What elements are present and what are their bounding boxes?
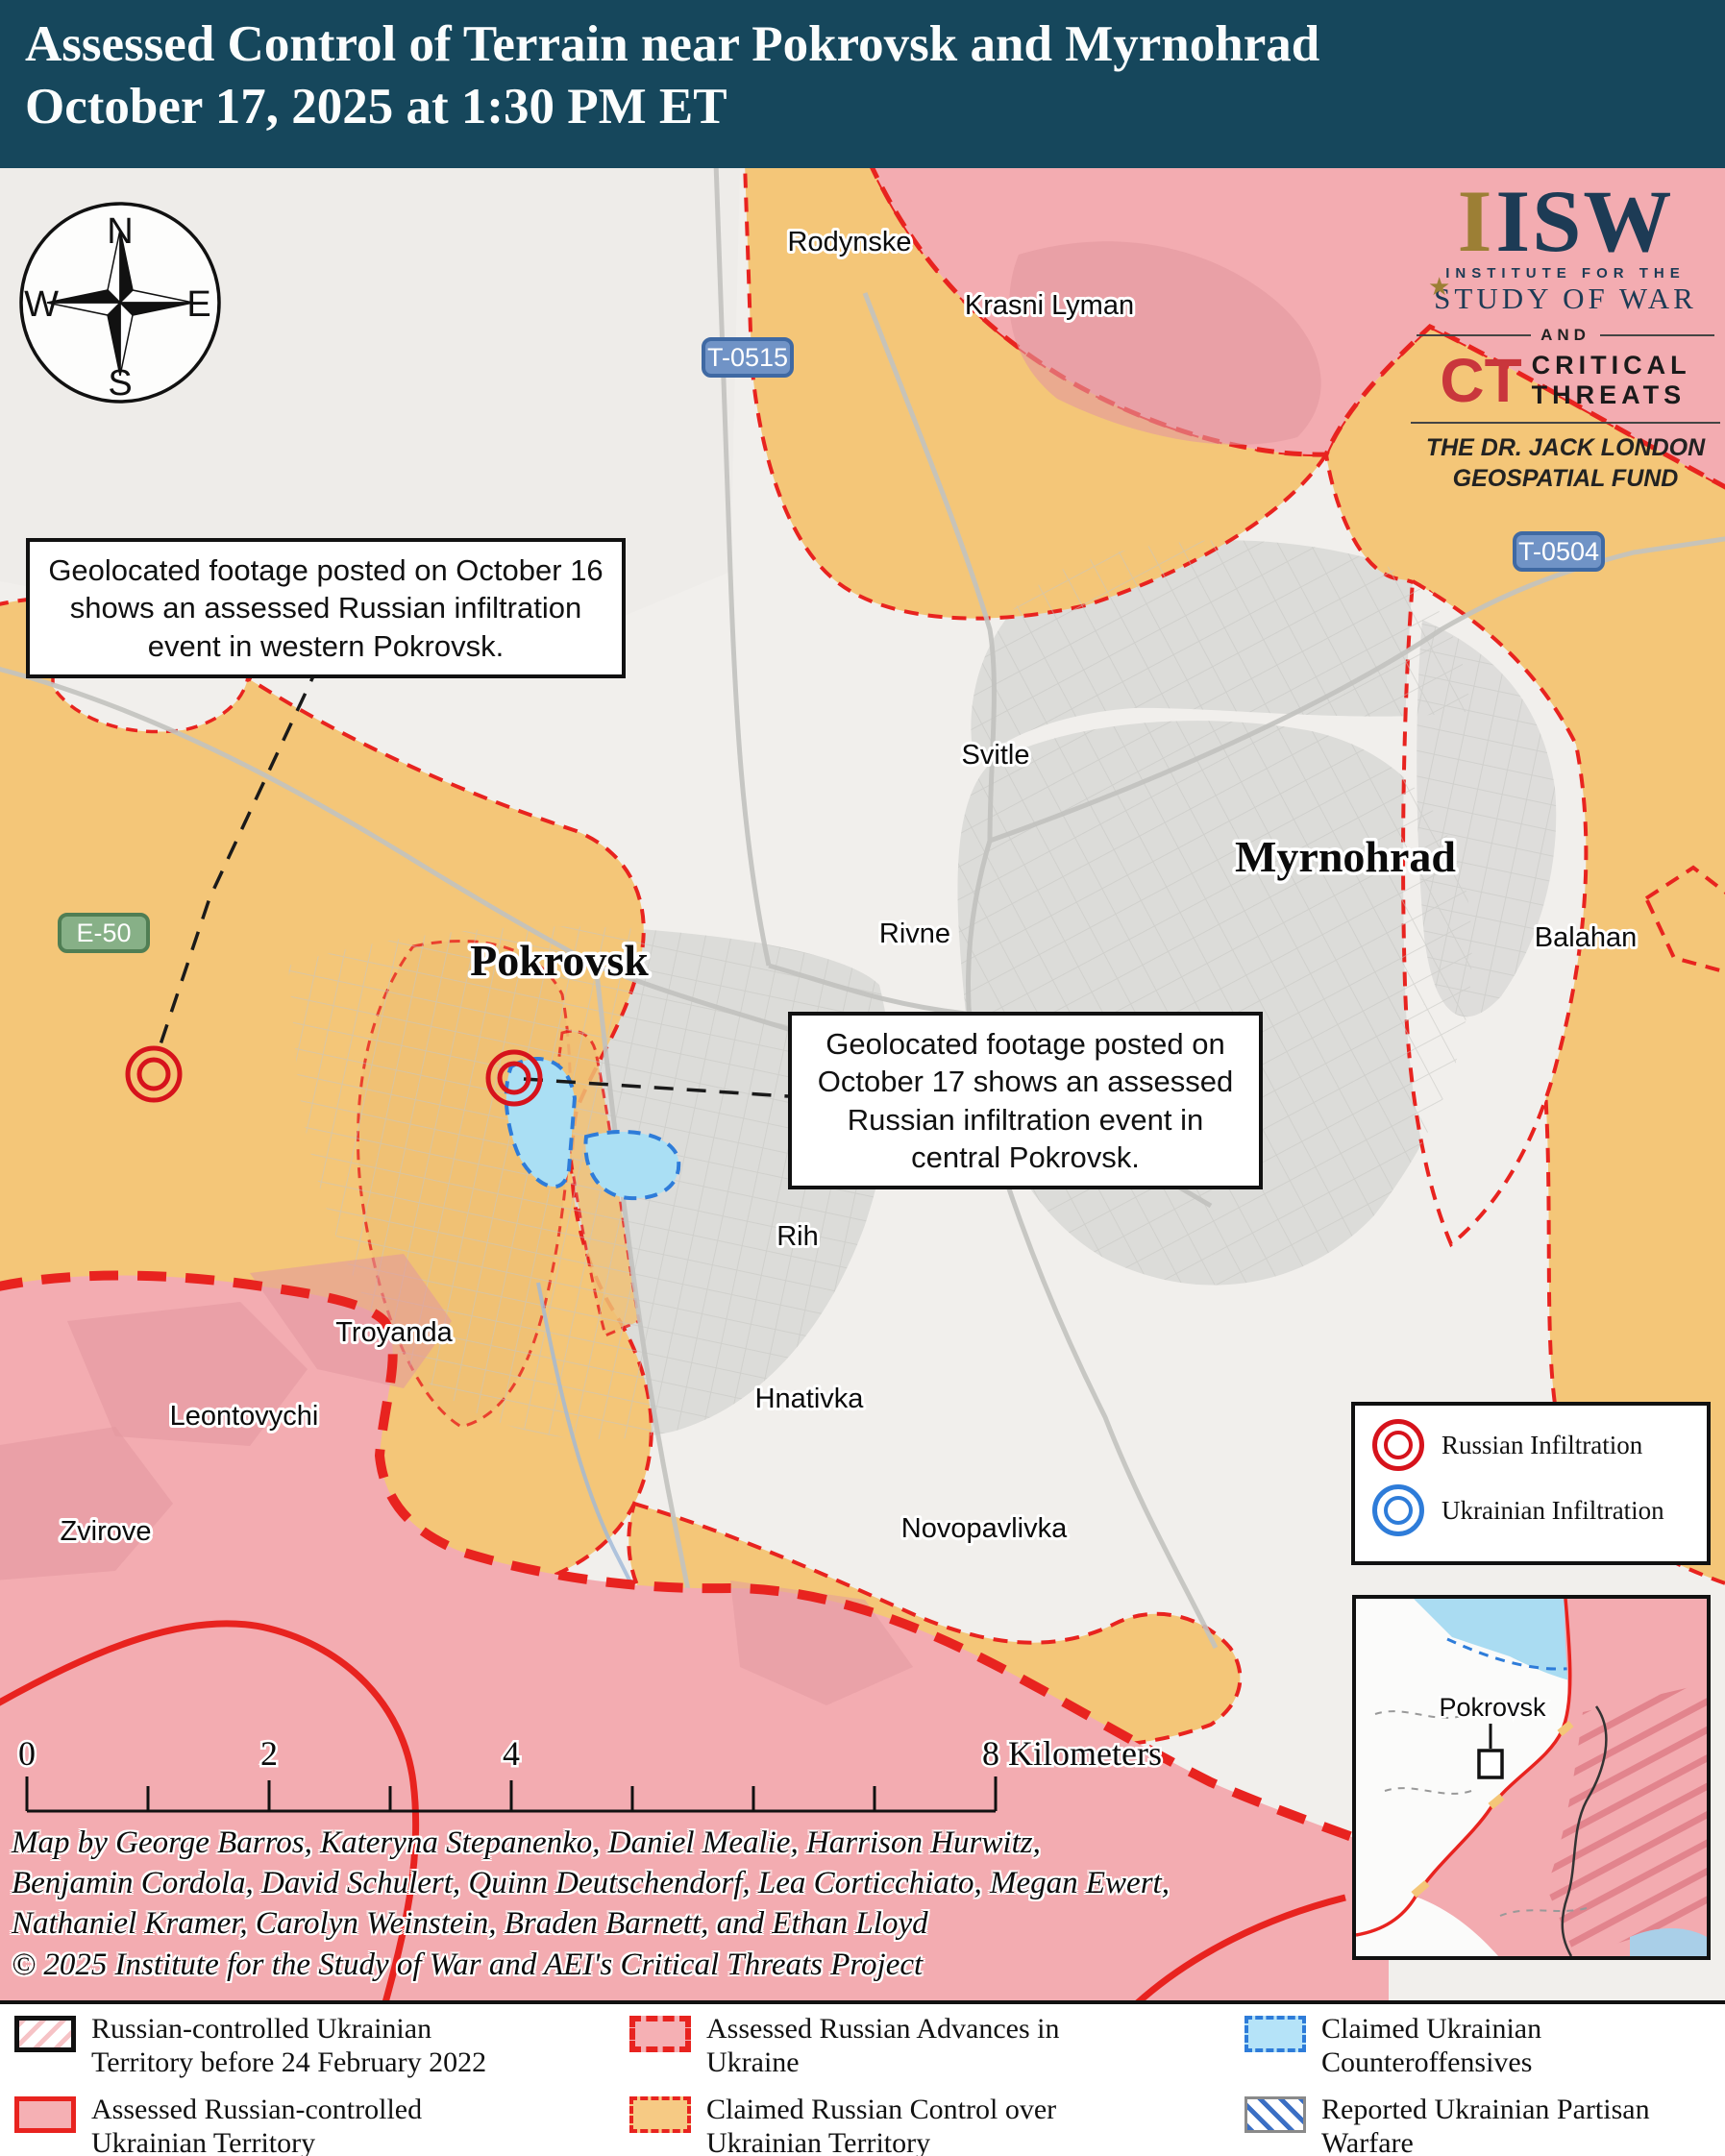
swatch-ukr-counteroffensives-icon [1244,2016,1306,2052]
label-rivne: Rivne [879,919,950,949]
label-balahan: Balahan [1535,922,1637,953]
legend-item-assessed-russian: Assessed Russian-controlled Ukrainian Te… [14,2093,610,2156]
label-leontovychi: Leontovychi [170,1401,319,1432]
swatch-assessed-russian-icon [14,2096,76,2133]
credits-line2: Benjamin Cordola, David Schulert, Quinn … [12,1863,1290,1903]
critical-threats-logo: CT CRITICAL THREATS [1411,351,1720,410]
map-credits: Map by George Barros, Kateryna Stepanenk… [12,1823,1290,1985]
svg-text:T-0504: T-0504 [1518,537,1599,566]
compass-n: N [107,211,133,252]
credits-line4: © 2025 Institute for the Study of War an… [12,1945,1290,1985]
compass-s: S [108,363,132,404]
compass-w: W [24,284,59,325]
label-novopavlivka: Novopavlivka [901,1513,1068,1544]
divider-line [1600,334,1714,336]
legend-label: Reported Ukrainian Partisan Warfare [1321,2093,1687,2156]
label-troyanda: Troyanda [335,1317,453,1348]
credits-line3: Nathaniel Kramer, Carolyn Weinstein, Bra… [12,1903,1290,1944]
isw-logo-text: ISW [1495,172,1673,270]
and-divider: AND [1417,326,1714,345]
legend-item-pre2022: Russian-controlled Ukrainian Territory b… [14,2012,610,2080]
label-myrnohrad: Myrnohrad [1235,832,1456,881]
label-pokrovsk: Pokrovsk [470,936,649,985]
map-canvas[interactable]: T-0515 T-0504 E-50 Rodynske Krasni Lyman… [0,168,1725,2000]
fund-line1: THE DR. JACK LONDON [1411,433,1720,463]
legend-label: Assessed Russian Advances in Ukraine [706,2012,1129,2080]
inset-svg: Pokrovsk [1356,1599,1707,1956]
isw-subtitle-1: INSTITUTE FOR THE [1411,265,1720,282]
isw-map-page: Assessed Control of Terrain near Pokrovs… [0,0,1725,2156]
isw-subtitle-2: STUDY OF WAR [1411,282,1720,316]
label-hnativka: Hnativka [755,1384,865,1414]
isw-logo: IISW [1411,180,1720,263]
svg-text:8 Kilometers: 8 Kilometers [982,1734,1162,1773]
ukrainian-infiltration-icon [1372,1484,1424,1536]
inset-locator-map[interactable]: Pokrovsk [1352,1595,1711,1960]
label-rih: Rih [776,1221,819,1252]
logo-block: IISW ★ INSTITUTE FOR THE STUDY OF WAR AN… [1411,180,1720,494]
inset-pokrovsk-label: Pokrovsk [1439,1693,1546,1722]
and-label: AND [1540,326,1590,345]
svg-text:0: 0 [18,1734,36,1773]
swatch-claimed-russian-icon [629,2096,691,2133]
legend-item-russian-advances: Assessed Russian Advances in Ukraine [629,2012,1225,2080]
legend-label: Russian-controlled Ukrainian Territory b… [91,2012,505,2080]
inner-ring [1384,1431,1413,1459]
road-shield-t0504: T-0504 [1515,533,1603,570]
credits-line1: Map by George Barros, Kateryna Stepanenk… [12,1823,1290,1863]
label-zvirove: Zvirove [60,1516,151,1547]
compass-e: E [186,284,210,325]
svg-text:E-50: E-50 [76,919,131,947]
infiltration-legend: Russian Infiltration Ukrainian Infiltrat… [1351,1402,1711,1565]
ukrainian-infiltration-label: Ukrainian Infiltration [1442,1496,1664,1526]
swatch-russian-advances-icon [629,2016,691,2052]
inner-ring [1384,1496,1413,1525]
legend-item-partisan-warfare: Reported Ukrainian Partisan Warfare [1244,2093,1715,2156]
svg-text:2: 2 [260,1734,278,1773]
legend-row-russian-infiltration: Russian Infiltration [1372,1419,1697,1471]
map-subtitle-date: October 17, 2025 at 1:30 PM ET [25,76,1725,138]
inset-extent-rectangle [1479,1751,1502,1777]
map-title: Assessed Control of Terrain near Pokrovs… [25,13,1725,76]
legend-row-ukrainian-infiltration: Ukrainian Infiltration [1372,1484,1697,1536]
title-bar: Assessed Control of Terrain near Pokrovs… [0,0,1725,168]
fund-line2: GEOSPATIAL FUND [1411,464,1720,494]
isw-star-icon: ★ [1428,272,1450,302]
legend-item-claimed-russian: Claimed Russian Control over Ukrainian T… [629,2093,1225,2156]
divider-line [1417,334,1531,336]
callout-october-17: Geolocated footage posted on October 17 … [788,1012,1263,1189]
label-svitle: Svitle [962,740,1030,771]
legend-label: Assessed Russian-controlled Ukrainian Te… [91,2093,505,2156]
svg-text:T-0515: T-0515 [707,343,788,372]
russian-infiltration-label: Russian Infiltration [1442,1431,1642,1460]
compass-rose: N E S W [21,204,219,404]
geospatial-fund-label: THE DR. JACK LONDON GEOSPATIAL FUND [1411,422,1720,494]
ct-line2: THREATS [1532,380,1691,410]
svg-text:4: 4 [503,1734,520,1773]
legend-label: Claimed Russian Control over Ukrainian T… [706,2093,1129,2156]
road-shield-t0515: T-0515 [703,339,792,376]
isw-logo-accent: I [1458,172,1494,270]
road-shield-e50: E-50 [60,915,148,951]
label-rodynske: Rodynske [788,227,912,257]
swatch-partisan-warfare-icon [1244,2096,1306,2133]
legend-label: Claimed Ukrainian Counteroffensives [1321,2012,1687,2080]
swatch-pre2022-icon [14,2016,76,2052]
ct-name: CRITICAL THREATS [1532,351,1691,410]
ct-icon: CT [1440,354,1521,409]
ct-line1: CRITICAL [1532,351,1691,380]
russian-infiltration-icon [1372,1419,1424,1471]
legend-item-ukr-counteroffensives: Claimed Ukrainian Counteroffensives [1244,2012,1715,2080]
callout-october-16: Geolocated footage posted on October 16 … [26,538,626,678]
label-krasni-lyman: Krasni Lyman [965,290,1134,321]
map-legend-bar: Russian-controlled Ukrainian Territory b… [0,2000,1725,2156]
